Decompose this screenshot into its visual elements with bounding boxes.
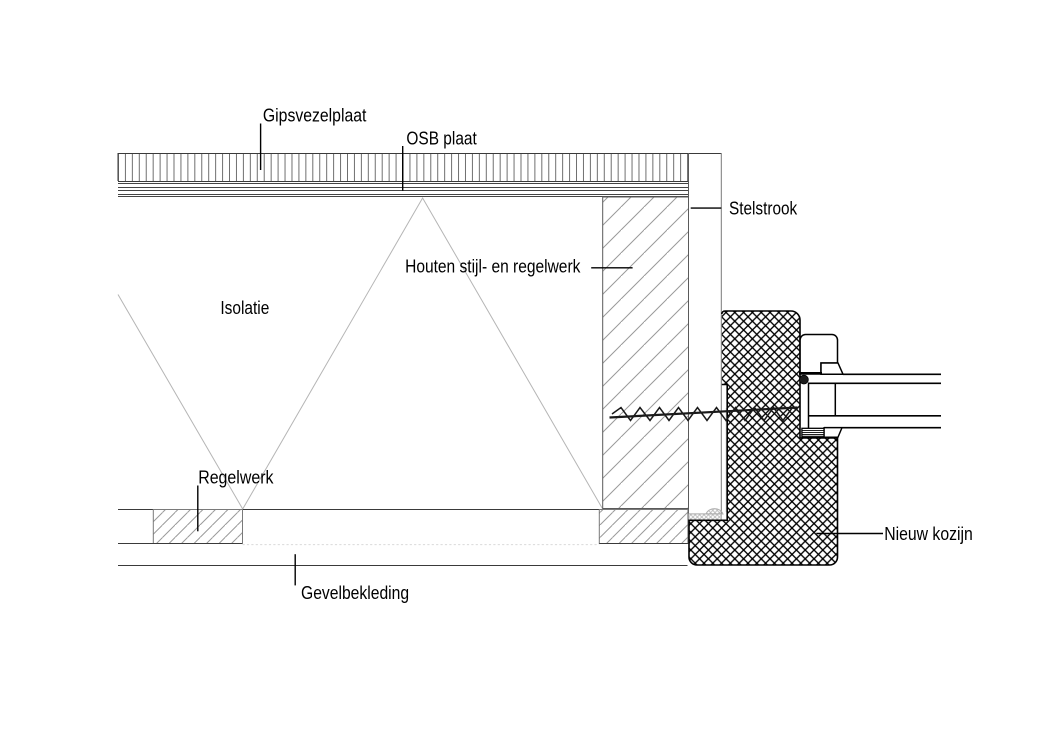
svg-text:OSB plaat: OSB plaat	[406, 128, 476, 148]
svg-text:Houten stijl- en regelwerk: Houten stijl- en regelwerk	[405, 256, 581, 276]
svg-text:Gipsvezelplaat: Gipsvezelplaat	[263, 106, 367, 126]
svg-text:Gevelbekleding: Gevelbekleding	[301, 583, 409, 603]
svg-text:Isolatie: Isolatie	[220, 298, 269, 318]
svg-text:Regelwerk: Regelwerk	[198, 468, 274, 488]
svg-text:Nieuw kozijn: Nieuw kozijn	[884, 524, 973, 544]
svg-text:Stelstrook: Stelstrook	[729, 198, 798, 218]
